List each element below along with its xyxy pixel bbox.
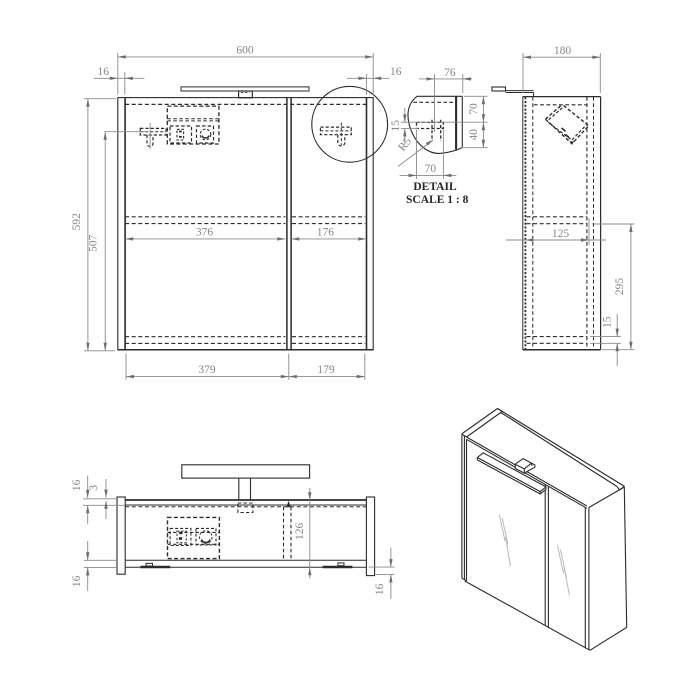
svg-text:295: 295 — [614, 278, 626, 296]
svg-text:70: 70 — [425, 163, 437, 175]
svg-text:70: 70 — [468, 103, 480, 115]
svg-text:15: 15 — [390, 120, 402, 132]
svg-text:180: 180 — [554, 45, 572, 57]
svg-text:76: 76 — [444, 67, 456, 79]
svg-text:40: 40 — [468, 129, 480, 141]
svg-text:376: 376 — [196, 226, 214, 238]
svg-text:15: 15 — [601, 316, 613, 328]
svg-text:507: 507 — [88, 234, 100, 252]
svg-text:179: 179 — [317, 364, 335, 376]
svg-text:600: 600 — [236, 45, 254, 57]
svg-text:16: 16 — [98, 66, 110, 78]
svg-text:3: 3 — [88, 485, 100, 491]
svg-text:176: 176 — [317, 226, 335, 238]
svg-text:16: 16 — [71, 575, 83, 587]
svg-text:16: 16 — [374, 583, 386, 595]
svg-text:379: 379 — [198, 364, 216, 376]
svg-text:16: 16 — [390, 66, 402, 78]
svg-text:592: 592 — [71, 213, 83, 231]
svg-text:125: 125 — [552, 228, 570, 240]
svg-text:DETAIL: DETAIL — [413, 181, 457, 193]
svg-text:126: 126 — [294, 523, 306, 541]
svg-text:16: 16 — [71, 479, 83, 491]
svg-text:SCALE 1 : 8: SCALE 1 : 8 — [406, 194, 469, 206]
